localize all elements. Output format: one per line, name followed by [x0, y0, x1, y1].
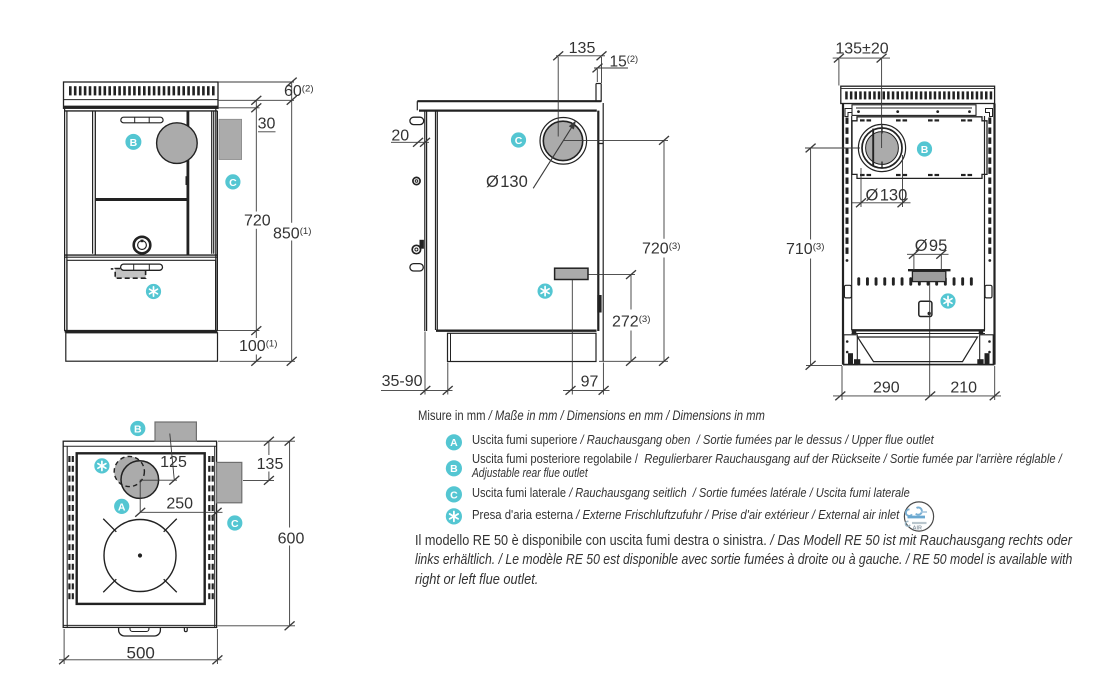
svg-text:B: B	[130, 137, 138, 149]
svg-text:135±20: 135±20	[835, 41, 888, 58]
svg-text:C: C	[229, 177, 237, 189]
svg-text:500: 500	[127, 643, 155, 662]
svg-text:AIR: AIR	[913, 526, 923, 532]
svg-text:35-90: 35-90	[382, 373, 423, 390]
svg-text:600: 600	[278, 530, 305, 547]
svg-text:850(1): 850(1)	[273, 225, 311, 242]
svg-text:135: 135	[569, 40, 596, 57]
svg-text:C: C	[450, 489, 458, 501]
svg-text:135: 135	[257, 456, 284, 473]
svg-text:Ø 95: Ø 95	[915, 237, 948, 255]
svg-text:B: B	[450, 463, 458, 475]
svg-text:B: B	[134, 423, 142, 435]
svg-text:A: A	[450, 437, 458, 449]
svg-text:97: 97	[581, 373, 599, 390]
svg-text:272(3): 272(3)	[612, 313, 650, 330]
svg-text:Ø 130: Ø 130	[486, 173, 528, 191]
svg-text:Ø 130: Ø 130	[866, 187, 908, 205]
svg-text:20: 20	[391, 127, 409, 144]
svg-text:720: 720	[244, 212, 271, 229]
svg-text:290: 290	[873, 379, 900, 396]
svg-text:210: 210	[950, 379, 977, 396]
svg-text:60(2): 60(2)	[284, 83, 314, 100]
svg-text:C: C	[231, 518, 239, 530]
svg-text:710(3): 710(3)	[786, 241, 824, 258]
svg-text:C: C	[515, 135, 523, 147]
svg-text:A: A	[118, 501, 126, 513]
svg-text:30: 30	[258, 116, 276, 133]
svg-text:100(1): 100(1)	[239, 338, 277, 355]
svg-text:250: 250	[166, 495, 193, 512]
svg-text:15(2): 15(2)	[610, 53, 639, 70]
svg-text:720(3): 720(3)	[642, 241, 680, 258]
svg-text:B: B	[921, 144, 929, 156]
svg-text:125: 125	[160, 454, 187, 471]
